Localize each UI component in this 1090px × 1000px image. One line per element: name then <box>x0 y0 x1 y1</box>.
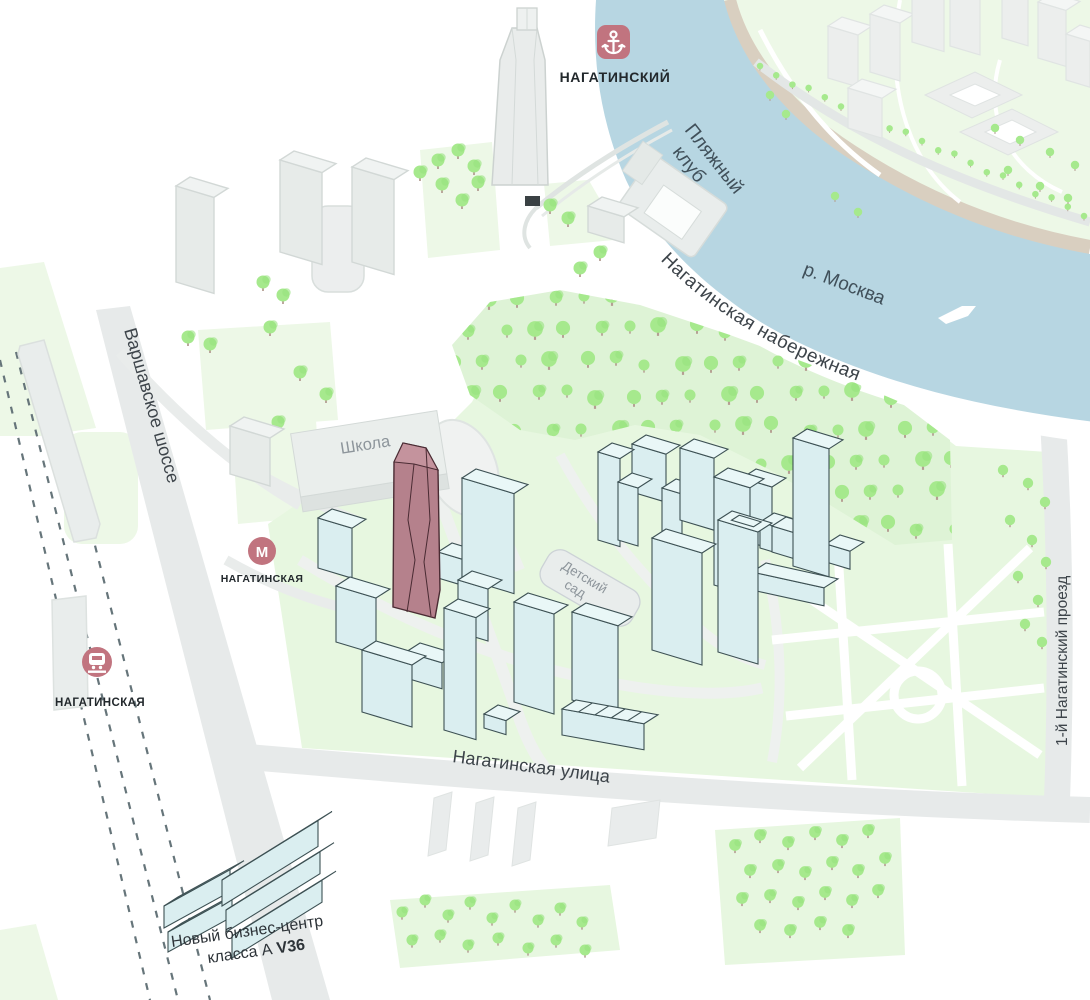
tree <box>644 287 658 304</box>
tree <box>579 944 591 957</box>
map-stage: Нагатинская набережная р. Москва Пляжный… <box>0 0 1090 1000</box>
svg-text:М: М <box>256 544 269 561</box>
building-block <box>1066 25 1090 87</box>
tree <box>257 275 271 291</box>
tree <box>444 285 455 298</box>
site-map: Нагатинская набережная р. Москва Пляжный… <box>0 0 1090 1000</box>
tree <box>594 245 608 261</box>
tree <box>574 261 588 277</box>
highlighted-building[interactable] <box>393 443 440 618</box>
anchor-icon <box>597 25 630 59</box>
dark-kiosk <box>525 196 540 206</box>
proezd-label: 1-й Нагатинский проезд <box>1054 576 1071 746</box>
spire-tower <box>492 8 548 185</box>
tree <box>277 288 291 304</box>
building-block <box>352 158 408 275</box>
tree <box>182 330 196 346</box>
building-block <box>176 177 228 293</box>
brand-label: НАГАТИНСКИЙ <box>560 68 671 85</box>
rail-platform <box>52 596 88 710</box>
rail-station-label: НАГАТИНСКАЯ <box>55 697 145 709</box>
metro-label: НАГАТИНСКАЯ <box>221 573 304 585</box>
tree <box>447 355 461 372</box>
